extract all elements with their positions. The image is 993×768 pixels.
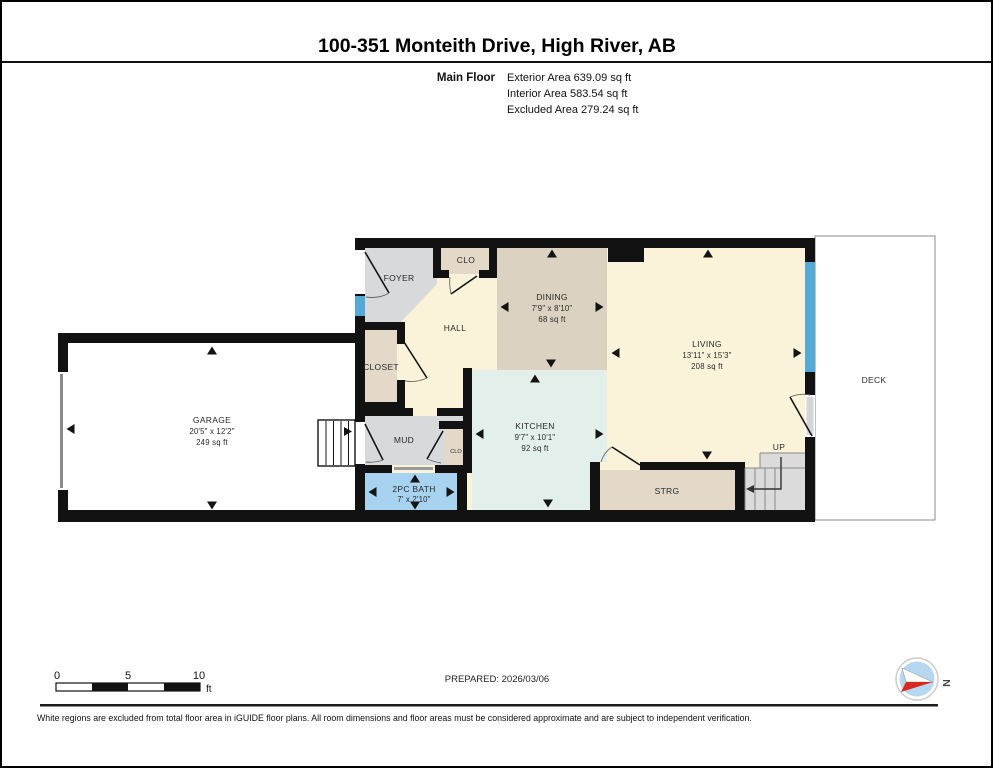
kitchen-label: KITCHEN xyxy=(515,421,554,431)
floor-plan: GARAGE 20'5" x 12'2" 249 sq ft FOYER CLO… xyxy=(58,236,935,522)
garage-overhead-door xyxy=(60,374,63,488)
footer-rule xyxy=(40,704,938,707)
closet-label: CLOSET xyxy=(363,362,399,372)
garage-stairs xyxy=(318,420,355,466)
stairs-landing xyxy=(760,453,805,468)
bath-label: 2PC BATH xyxy=(392,484,435,494)
bath-sliding-door xyxy=(394,467,433,470)
excluded-area: Excluded Area 279.24 sq ft xyxy=(507,104,638,116)
kitchen-dims: 9'7" x 10'1" xyxy=(515,433,556,442)
floor-label: Main Floor xyxy=(437,72,496,84)
header-rule xyxy=(2,61,991,63)
scale-tick-10: 10 xyxy=(193,670,205,682)
footer-disclaimer: White regions are excluded from total fl… xyxy=(37,713,752,723)
page-title: 100-351 Monteith Drive, High River, AB xyxy=(318,35,676,57)
floor-plan-sheet: 100-351 Monteith Drive, High River, AB M… xyxy=(0,0,993,768)
garage-door-opening xyxy=(355,422,365,464)
foyer-window xyxy=(355,296,365,316)
front-door-opening xyxy=(355,250,365,294)
storage-label: STRG xyxy=(655,486,680,496)
plan-canvas: 100-351 Monteith Drive, High River, AB M… xyxy=(2,2,991,766)
scale-tick-5: 5 xyxy=(125,670,131,682)
dining-label: DINING xyxy=(536,292,568,302)
garage-label: GARAGE xyxy=(193,415,231,425)
mud-closet-label: CLO xyxy=(450,449,462,455)
scale-unit: ft xyxy=(206,684,212,695)
room-kitchen-lower xyxy=(472,462,590,510)
garage-dims: 20'5" x 12'2" xyxy=(189,427,234,436)
dining-area: 68 sq ft xyxy=(538,315,566,324)
exterior-area: Exterior Area 639.09 sq ft xyxy=(507,72,631,84)
dining-dims: 7'9" x 8'10" xyxy=(532,304,573,313)
prepared-date: PREPARED: 2026/03/06 xyxy=(445,674,549,685)
room-fills xyxy=(68,236,935,520)
scale-bar: 0 5 10 ft xyxy=(54,670,212,695)
hall-label: HALL xyxy=(444,323,466,333)
scale-bar-seg-1 xyxy=(92,683,128,691)
foyer-closet-label: CLO xyxy=(457,255,475,265)
header: 100-351 Monteith Drive, High River, AB M… xyxy=(2,35,991,116)
living-window xyxy=(805,262,815,372)
foyer-label: FOYER xyxy=(384,273,415,283)
interior-area: Interior Area 583.54 sq ft xyxy=(507,88,627,100)
scale-bar-seg-2 xyxy=(164,683,200,691)
living-dims: 13'11" x 15'3" xyxy=(682,351,731,360)
deck-label: DECK xyxy=(862,375,887,385)
living-area: 208 sq ft xyxy=(691,362,723,371)
compass-icon: N xyxy=(896,658,952,700)
room-mud-closet xyxy=(445,429,463,465)
garage-area: 249 sq ft xyxy=(196,438,228,447)
up-label: UP xyxy=(773,442,785,452)
mud-label: MUD xyxy=(394,435,414,445)
kitchen-area: 92 sq ft xyxy=(521,444,549,453)
living-label: LIVING xyxy=(692,339,722,349)
bath-dims: 7' x 2'10" xyxy=(397,495,430,504)
north-label: N xyxy=(940,679,952,687)
scale-tick-0: 0 xyxy=(54,670,60,682)
